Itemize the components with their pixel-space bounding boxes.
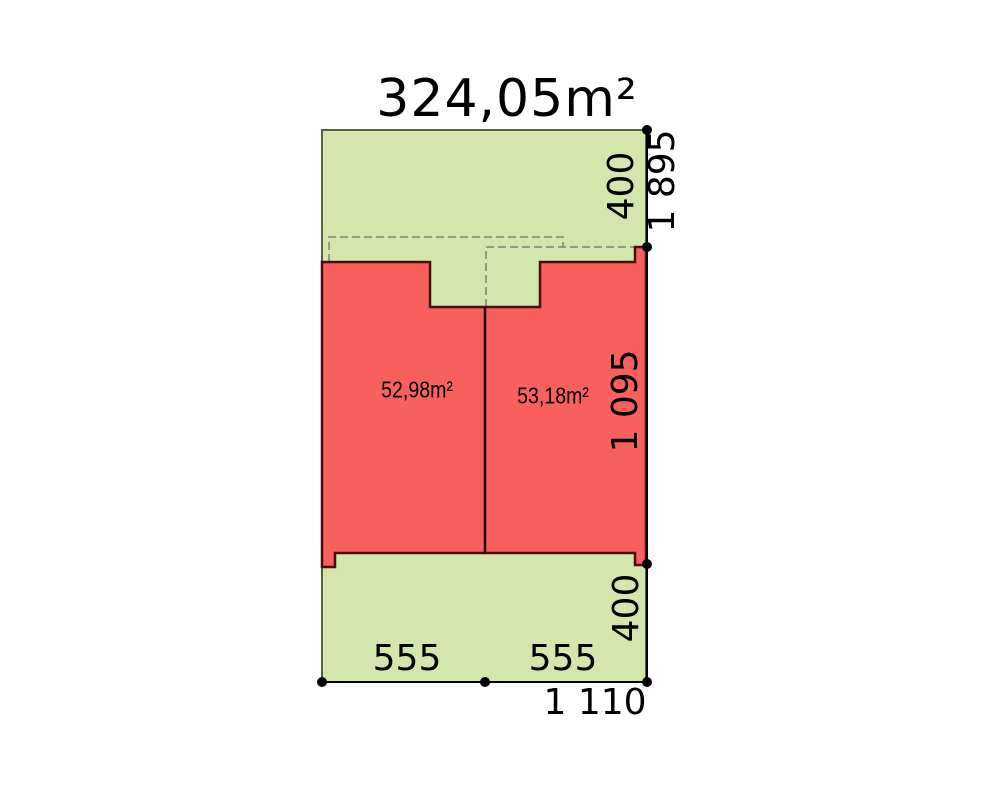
dim-bottom-strip: 400 [609, 574, 645, 643]
dim-bottom-right-width: 555 [529, 641, 598, 677]
dim-bottom-left-width: 555 [373, 641, 442, 677]
dimension-dot [317, 677, 327, 687]
dim-total-height: 1 895 [645, 129, 681, 232]
dim-total-width: 1 110 [543, 685, 646, 721]
dim-top-strip: 400 [604, 152, 640, 221]
dimension-dot [480, 677, 490, 687]
dim-building-height: 1 095 [608, 349, 644, 452]
dimension-dot [642, 559, 652, 569]
unit-left-area-label[interactable]: 52,98m² [381, 379, 453, 402]
unit-right-area-label[interactable]: 53,18m² [517, 385, 589, 408]
site-plan-diagram: 324,05m² 400 1 895 1 095 400 555 555 1 1… [0, 0, 1000, 800]
dimension-dot [642, 242, 652, 252]
plot-area-title: 324,05m² [376, 73, 637, 125]
